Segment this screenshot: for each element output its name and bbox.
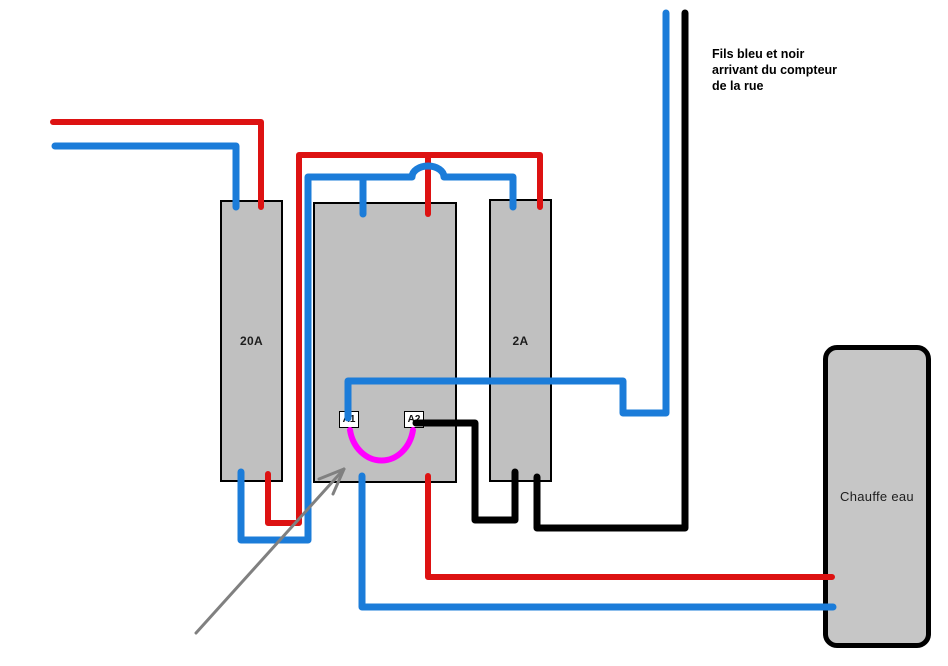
wires-layer bbox=[0, 0, 948, 666]
meter-note-line2: arrivant du compteur bbox=[712, 62, 892, 78]
wire-blue-heater bbox=[362, 476, 833, 607]
annotation-arrow-line bbox=[196, 469, 344, 633]
meter-note: Fils bleu et noir arrivant du compteur d… bbox=[712, 46, 892, 94]
meter-note-line3: de la rue bbox=[712, 78, 892, 94]
breaker-20a-label: 20A bbox=[240, 334, 263, 348]
terminal-a1-label: A1 bbox=[343, 414, 356, 425]
water-heater-box: Chauffe eau bbox=[823, 345, 931, 648]
wire-red-heater bbox=[428, 476, 832, 577]
breaker-2a-label: 2A bbox=[513, 334, 529, 348]
wire-black-meter bbox=[537, 13, 685, 528]
terminal-a1-chip: A1 bbox=[339, 411, 359, 428]
terminal-a2-chip: A2 bbox=[404, 411, 424, 428]
wire-blue-feed bbox=[55, 146, 236, 207]
terminal-a2-label: A2 bbox=[408, 414, 421, 425]
wiring-diagram: 20A 2A Chauffe eau A1 A2 Fils bleu et no… bbox=[0, 0, 948, 666]
meter-note-line1: Fils bleu et noir bbox=[712, 46, 892, 62]
contactor-box bbox=[313, 202, 457, 483]
breaker-2a-box: 2A bbox=[489, 199, 552, 482]
breaker-20a-box: 20A bbox=[220, 200, 283, 482]
wire-red-feed bbox=[53, 122, 261, 207]
water-heater-label: Chauffe eau bbox=[840, 489, 914, 504]
